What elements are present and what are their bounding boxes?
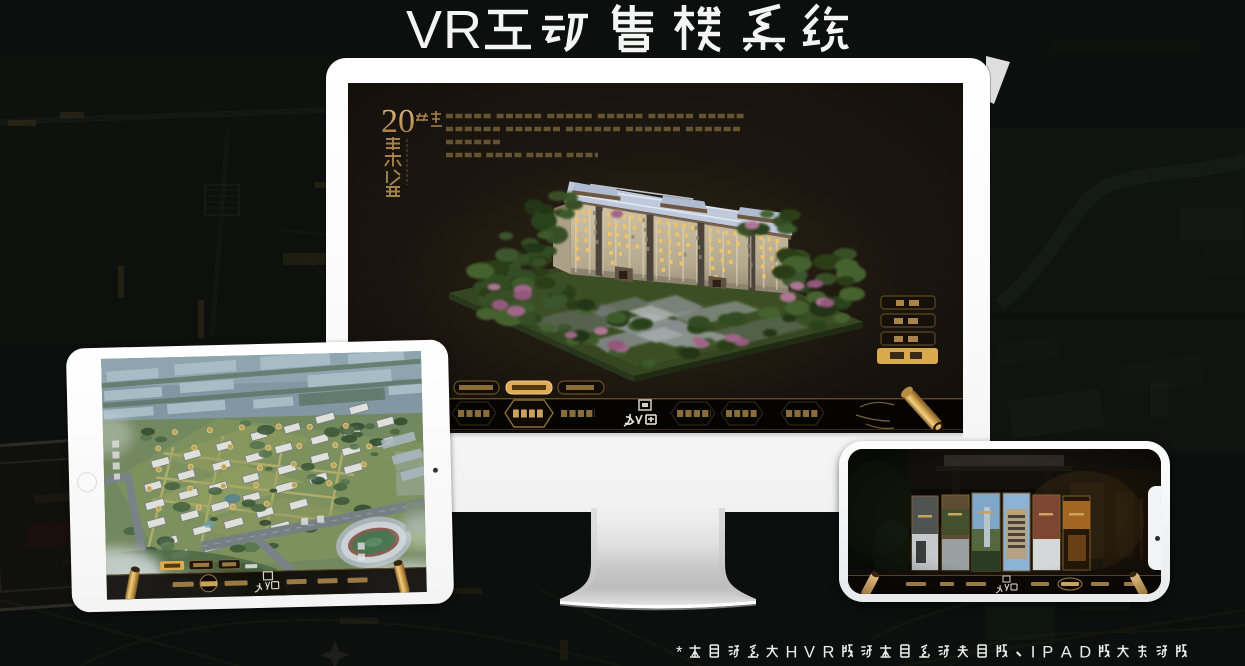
svg-text:VR: VR xyxy=(406,0,483,58)
svg-text:I: I xyxy=(1031,644,1036,662)
svg-text:V: V xyxy=(804,644,815,662)
svg-text:A: A xyxy=(1061,644,1072,662)
svg-text:R: R xyxy=(823,644,835,662)
svg-text:20: 20 xyxy=(381,103,415,140)
svg-text:P: P xyxy=(1042,644,1053,662)
svg-text:H: H xyxy=(786,644,798,662)
svg-text:*: * xyxy=(676,644,683,662)
svg-text:D: D xyxy=(1079,644,1091,662)
